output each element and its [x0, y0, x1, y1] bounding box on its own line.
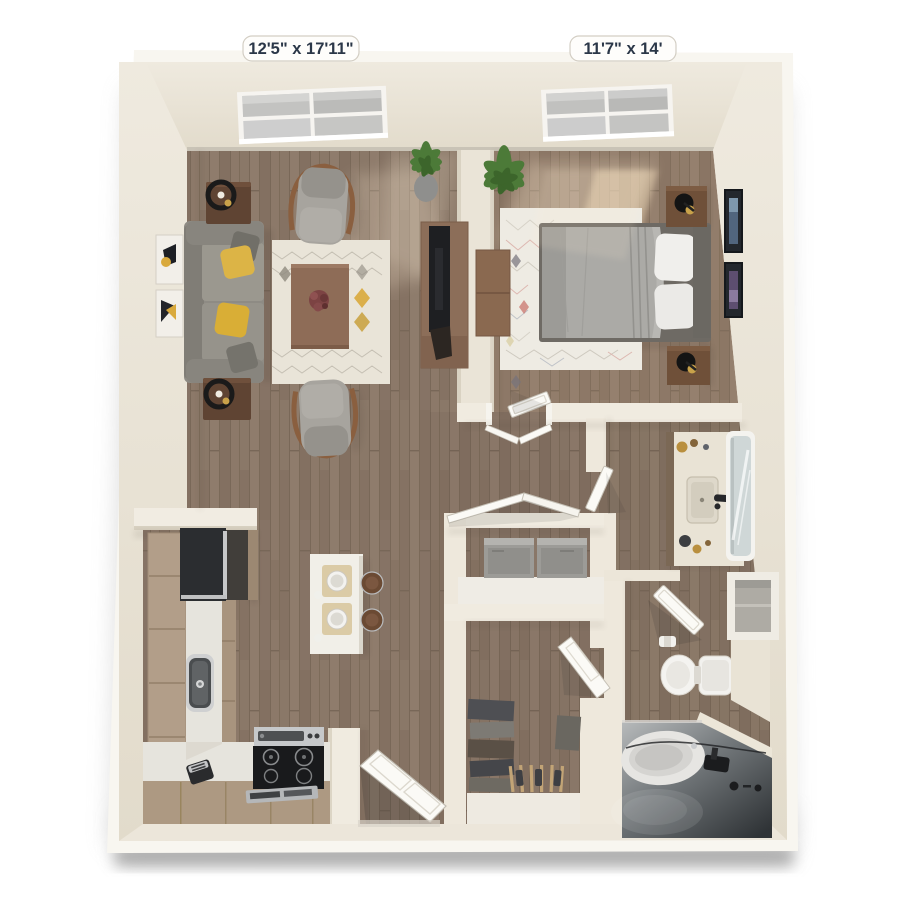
svg-text:12'5" x 17'11": 12'5" x 17'11": [248, 40, 353, 58]
svg-text:11'7" x 14': 11'7" x 14': [584, 40, 663, 58]
